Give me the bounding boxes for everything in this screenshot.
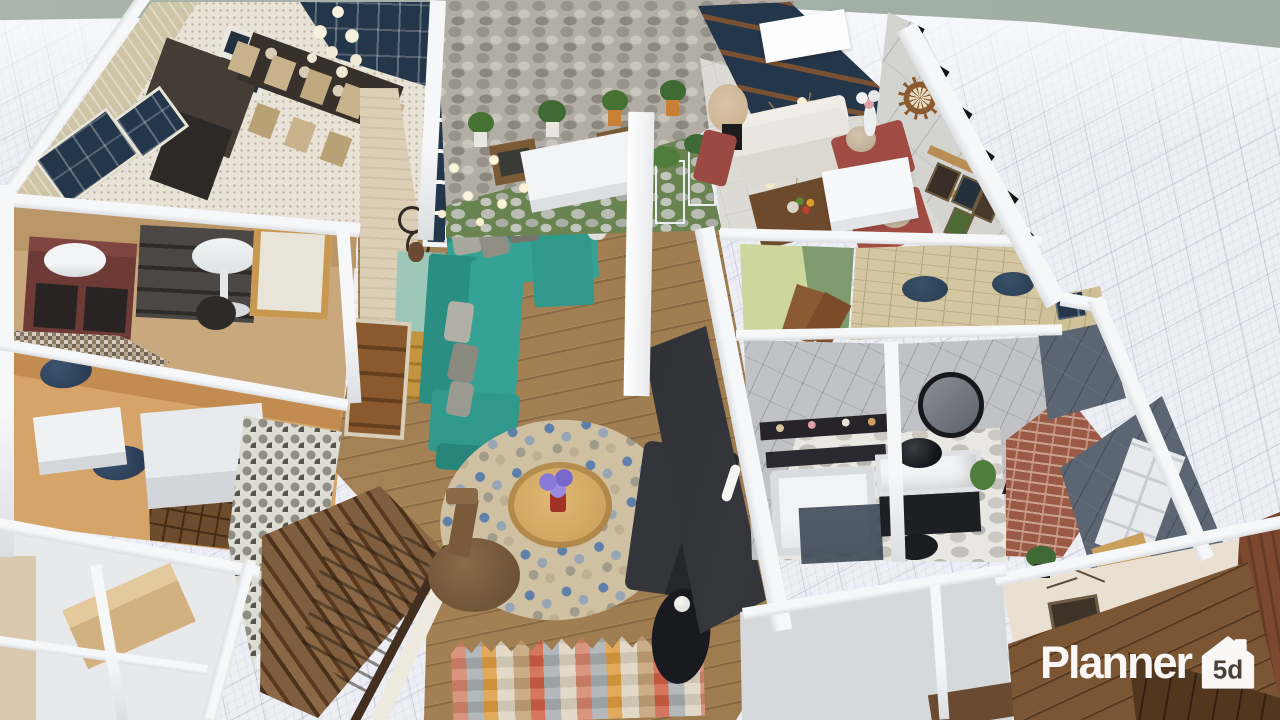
plant-stand-white [655,160,685,224]
potted-plant [468,112,494,134]
console-lamp [408,242,424,262]
bathroom-plant [970,460,996,490]
planner5d-render-viewport[interactable]: Planner 5d [0,0,1280,720]
potted-plant [602,90,628,112]
plant-pot-white [546,122,559,137]
plant-pot-white [474,132,487,147]
planner-logo-text: Planner [1040,640,1191,685]
planner5d-watermark: Planner 5d [1040,634,1256,691]
plant-on-stand [650,146,680,168]
office-chair [196,296,236,330]
wall-segment [0,185,14,557]
sofa-pillow [443,300,474,343]
flower-bouquet [854,88,884,110]
round-white-counter-top [44,243,106,277]
potted-plant [660,80,686,102]
vessel-bowl-black [896,438,942,468]
staircase-newel-base [428,538,520,612]
planner5d-house-icon: 5d [1200,634,1256,691]
wood-doorway-frame [250,224,333,320]
string-lights [428,148,568,238]
partition-wall-edge [624,112,655,396]
globe-chandelier [302,2,374,80]
mirror-oval-black [918,372,984,438]
bathtub-glass-panel [799,504,884,564]
white-flower-in-vase [674,596,690,612]
potted-plant [538,100,566,124]
navy-floor-cushion [902,276,948,302]
staircase-newel-cap [446,488,478,504]
plant-pot-orange [608,110,621,126]
logo-badge-text: 5d [1213,654,1244,684]
white-square-table [33,407,127,475]
plant-pot-orange [666,100,679,116]
purple-flowers [534,466,582,500]
